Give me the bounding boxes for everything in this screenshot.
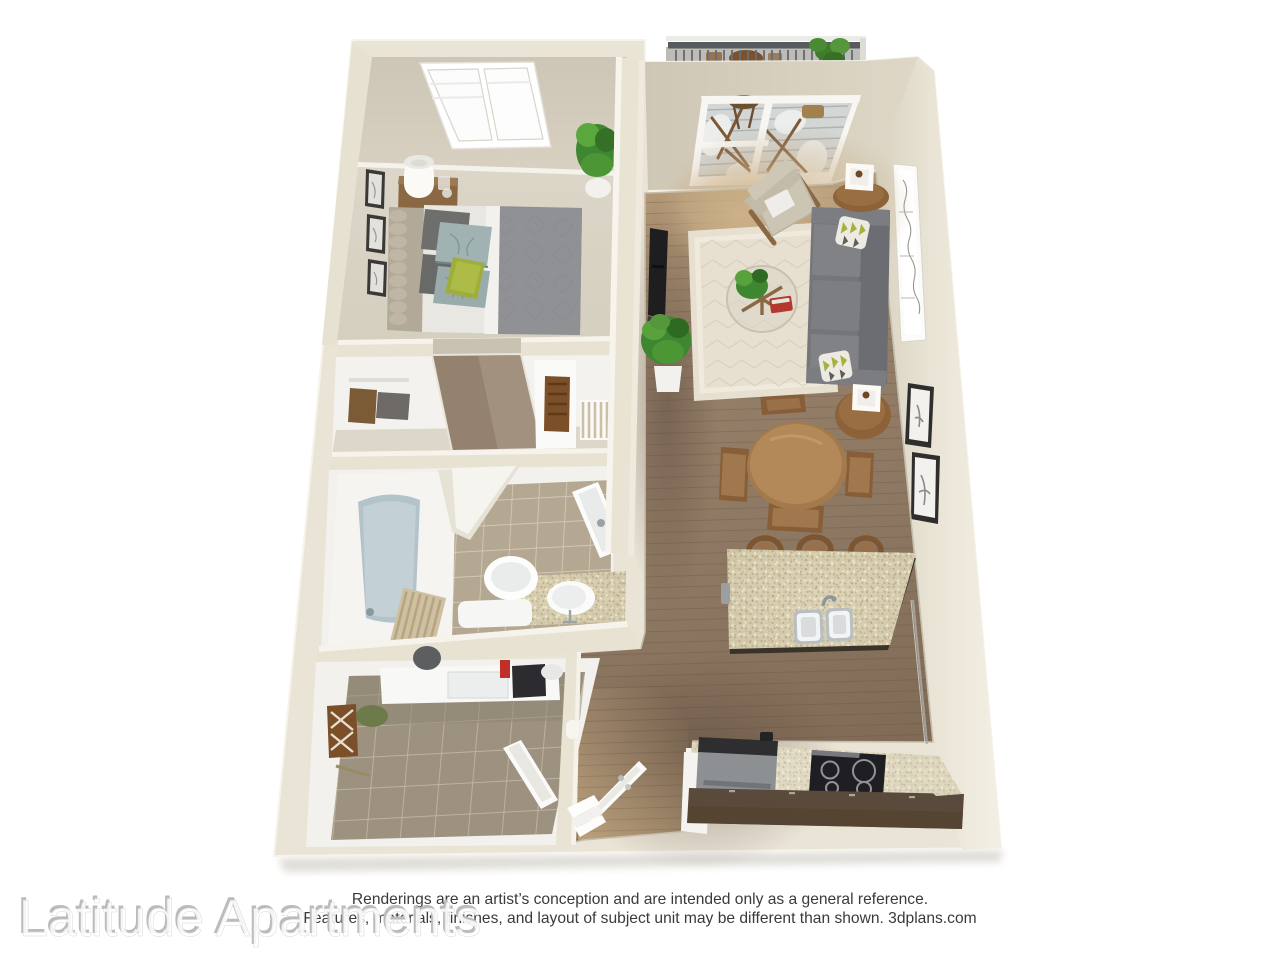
svg-text:Latitude Apartments: Latitude Apartments	[19, 890, 482, 948]
